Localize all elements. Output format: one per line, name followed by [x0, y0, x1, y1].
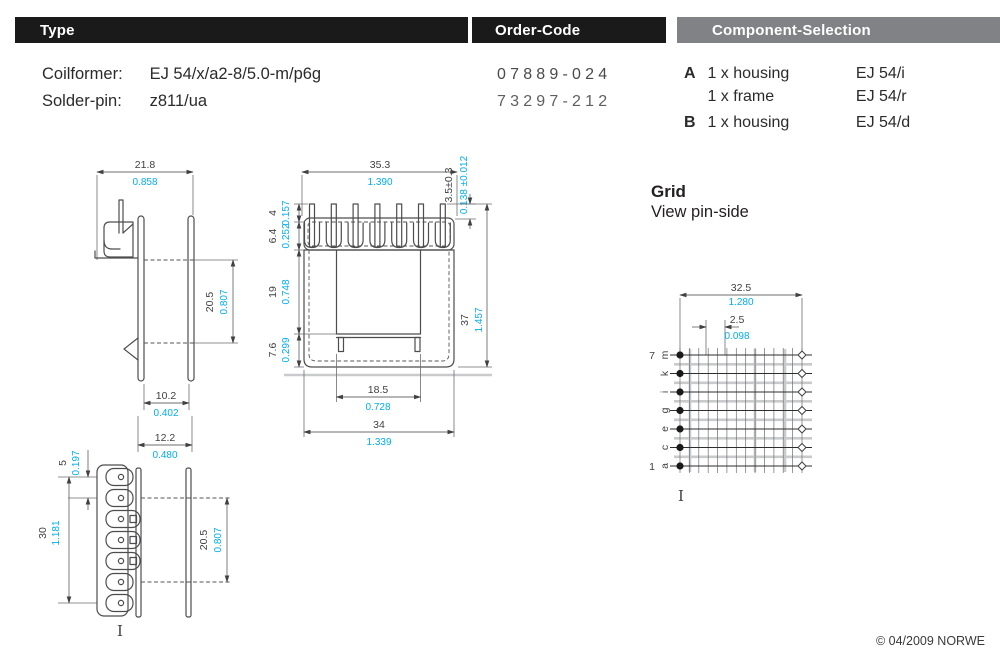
topview-dim-pitch: 5 0.197 [57, 450, 97, 510]
front-pin-pockets [305, 223, 451, 248]
grid-dim-pitch-mm: 2.5 [730, 314, 745, 326]
component-key-a: A [684, 65, 703, 83]
component-row-b: B 1 x housing EJ 54/d [684, 114, 910, 132]
solder-pin-row: Solder-pin: z811/ua [42, 92, 207, 111]
coilformer-row: Coilformer: EJ 54/x/a2-8/5.0-m/p6g [42, 65, 321, 84]
side-dim-width-top: 21.8 0.858 [97, 159, 193, 260]
side-dim-window-height: 20.5 0.807 [194, 260, 238, 343]
front-dim-pin-top-mm: 4 [267, 210, 279, 216]
grid-row-letter-g: g [659, 407, 671, 413]
front-dim-base-mm: 7.6 [267, 343, 279, 358]
topview-pin-holes [118, 474, 123, 605]
topview-dim-width-mm: 20.5 [198, 530, 210, 551]
side-dim-inner-mm: 10.2 [156, 390, 177, 402]
datasheet-page: Type Order-Code Component-Selection Coil… [0, 0, 1000, 663]
grid-pins-right [798, 351, 806, 470]
pin-side-view-drawing: 5 0.197 30 1.181 [40, 435, 270, 645]
side-dim-height-in: 0.807 [219, 289, 230, 314]
grid-title: Grid [651, 182, 686, 202]
order-code-2: 73297-212 [497, 93, 611, 111]
side-dim-height-mm: 20.5 [204, 292, 216, 313]
coilformer-label: Coilformer: [42, 65, 145, 84]
front-dim-window-width: 18.5 0.728 [337, 354, 421, 413]
grid-dim-span-mm: 32.5 [731, 282, 752, 294]
front-dim-width-top-in: 1.390 [367, 177, 392, 188]
front-pins [310, 204, 446, 247]
grid-row-letter-c: c [659, 445, 671, 450]
topview-dim-width: 20.5 0.807 [198, 498, 227, 582]
front-dim-flange-in: 0.252 [281, 223, 292, 248]
side-left-flange [138, 216, 144, 381]
topview-dim-length: 30 1.181 [37, 477, 97, 603]
grid-pin1-marker: I [678, 487, 684, 505]
component-part-a2: EJ 54/r [856, 88, 907, 105]
topview-body [97, 465, 232, 617]
component-part-b: EJ 54/d [856, 114, 910, 131]
front-dim-window-mm: 19 [267, 286, 279, 298]
topview-pin1-marker: I [117, 622, 123, 640]
topview-dim-length-in: 1.181 [51, 520, 62, 545]
component-selection-header-bar: Component-Selection [677, 17, 1000, 43]
front-dim-window-in: 0.748 [281, 279, 292, 304]
front-dim-body-width-mm: 34 [373, 419, 385, 431]
component-row-a: A 1 x housing EJ 54/i [684, 65, 905, 83]
grid-row-number-top: 7 [649, 350, 655, 362]
topview-flange-2 [186, 468, 191, 617]
order-code-header-bar: Order-Code [472, 17, 666, 43]
side-dim-inner-in: 0.402 [153, 408, 178, 419]
front-dim-total-height-mm: 37 [459, 314, 471, 326]
front-dim-pin-length-in: 0.138 ±0.012 [459, 155, 470, 214]
front-dim-body-width-in: 1.339 [366, 437, 391, 448]
grid-dim-pitch-in: 0.098 [724, 331, 749, 342]
grid-lines [670, 348, 812, 473]
side-right-flange [188, 216, 194, 381]
topview-dim-length-mm: 30 [37, 527, 49, 539]
front-view-drawing: 35.3 1.390 [268, 148, 498, 458]
type-header-label: Type [40, 22, 75, 39]
order-code-header-label: Order-Code [495, 22, 580, 39]
grid-row-labels: 7 1 m k i g e c a [649, 350, 671, 473]
front-winding-window [337, 250, 421, 338]
component-part-a: EJ 54/i [856, 65, 905, 82]
front-dim-window-width-mm: 18.5 [368, 384, 389, 396]
component-item-a2: 1 x frame [707, 88, 851, 106]
front-dim-width-top-mm: 35.3 [370, 159, 391, 171]
grid-row-letter-m: m [659, 350, 671, 359]
front-view-body [284, 204, 492, 375]
topview-dim-pitch-in: 0.197 [71, 450, 82, 475]
grid-drawing: 32.5 1.280 2.5 0.098 7 [640, 265, 870, 510]
front-dim-window-width-in: 0.728 [365, 402, 390, 413]
component-item-a: 1 x housing [707, 65, 851, 83]
component-key-b: B [684, 114, 703, 132]
front-dim-base-in: 0.299 [281, 337, 292, 362]
topview-dim-width-in: 0.807 [213, 527, 224, 552]
grid-row-letter-k: k [659, 370, 671, 376]
front-dim-pin-top-in: 0.157 [281, 200, 292, 225]
coilformer-value: EJ 54/x/a2-8/5.0-m/p6g [150, 65, 322, 83]
front-dim-flange-mm: 6.4 [267, 229, 279, 244]
grid-subtitle: View pin-side [651, 203, 749, 222]
grid-row-letter-e: e [659, 426, 671, 432]
front-dim-total-height-in: 1.457 [474, 307, 485, 332]
side-dim-width-top-in: 0.858 [132, 177, 157, 188]
side-view-body [95, 200, 194, 381]
front-dim-pin-length-mm: 3.5±0.3 [443, 167, 455, 202]
grid-dim-pitch: 2.5 0.098 [692, 314, 750, 355]
side-latch [124, 338, 138, 360]
component-row-a2: 1 x frame EJ 54/r [684, 88, 907, 106]
topview-dim-pitch-mm: 5 [57, 460, 69, 466]
type-header-bar: Type [15, 17, 468, 43]
grid-row-letter-i: i [659, 391, 671, 393]
component-selection-header-label: Component-Selection [712, 22, 871, 39]
order-code-1: 07889-024 [497, 66, 611, 84]
side-dim-width-top-mm: 21.8 [135, 159, 156, 171]
solder-pin-value: z811/ua [150, 92, 208, 110]
copyright-notice: © 04/2009 NORWE [876, 634, 985, 648]
grid-row-number-bottom: 1 [649, 461, 655, 473]
front-dim-total-height: 37 1.457 [458, 204, 492, 367]
solder-pin-label: Solder-pin: [42, 92, 145, 111]
grid-dim-span-in: 1.280 [728, 297, 753, 308]
side-view-drawing: 21.8 0.858 20.5 0.807 10.2 0.402 12. [60, 148, 290, 468]
grid-row-letter-a: a [659, 463, 671, 469]
front-dim-stack-left: 4 0.157 6.4 0.252 19 0.748 7.6 0.299 [267, 200, 336, 367]
component-item-b: 1 x housing [707, 114, 851, 132]
